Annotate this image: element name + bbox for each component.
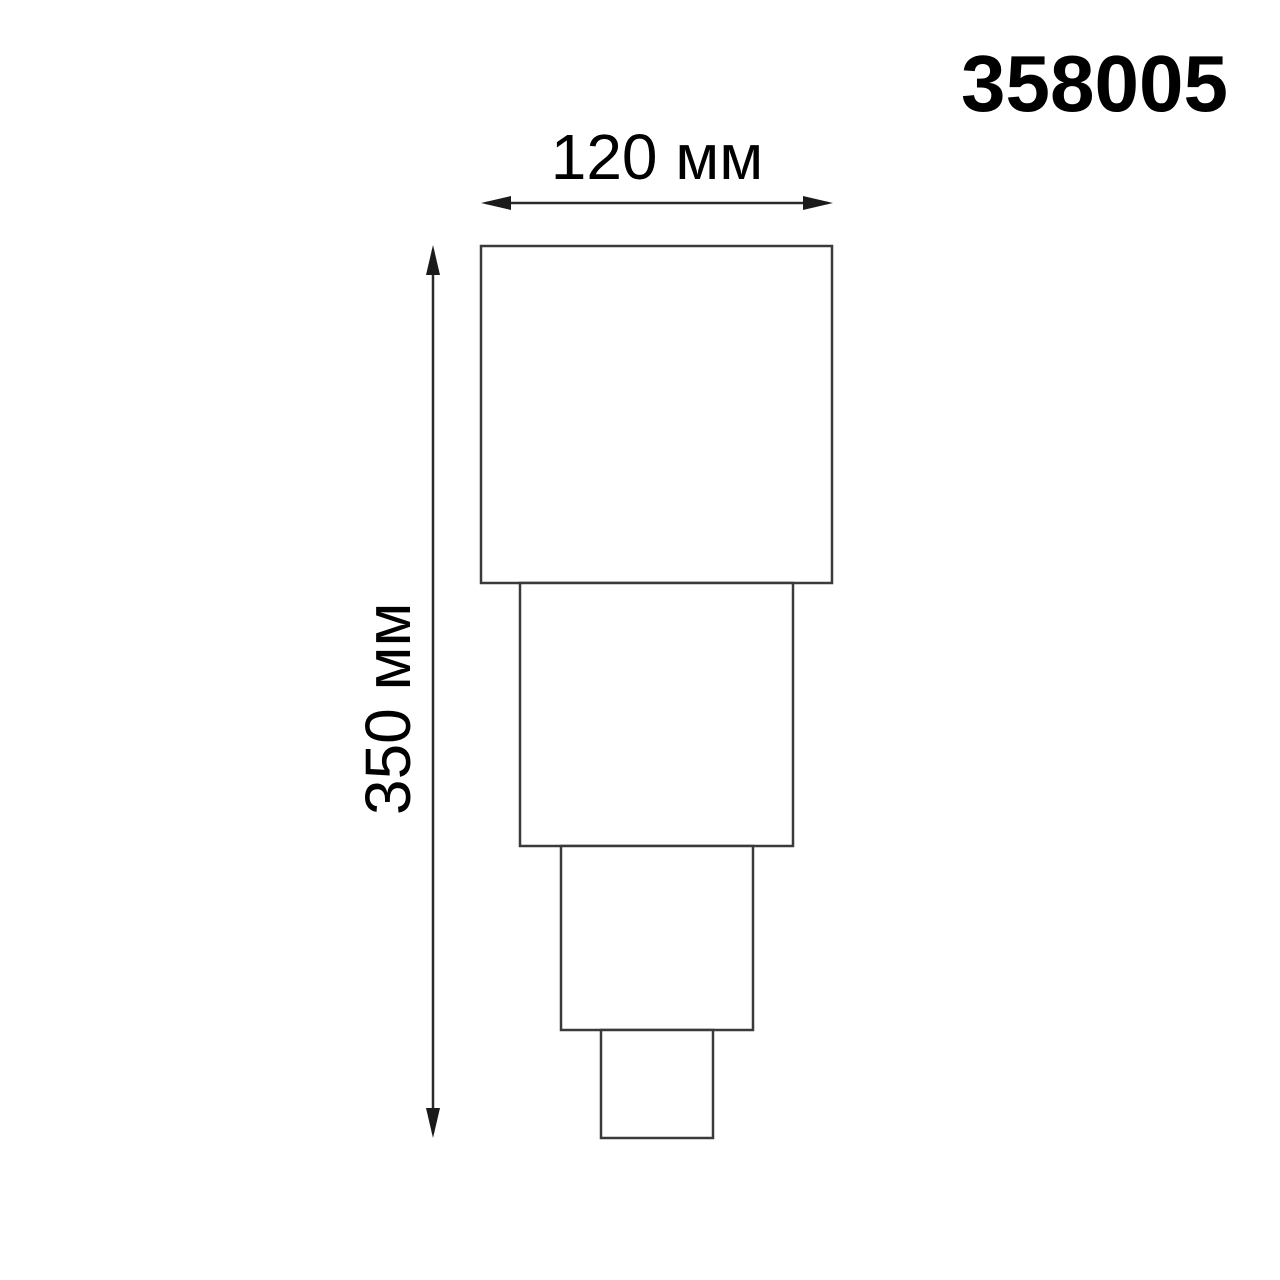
arrowhead-right-icon (803, 196, 833, 210)
fixture-tier-4 (601, 1030, 713, 1138)
fixture-tier-2 (520, 583, 793, 846)
fixture-outline-drawing (0, 0, 1280, 1280)
fixture-body (481, 246, 832, 1138)
width-dimension-arrow (481, 196, 833, 210)
fixture-tier-3 (561, 846, 753, 1030)
dimension-drawing-page: 358005 120 мм 350 мм (0, 0, 1280, 1280)
arrowhead-up-icon (426, 245, 440, 275)
arrowhead-down-icon (426, 1108, 440, 1138)
arrowhead-left-icon (481, 196, 511, 210)
height-dimension-arrow (426, 245, 440, 1138)
fixture-tier-1 (481, 246, 832, 583)
